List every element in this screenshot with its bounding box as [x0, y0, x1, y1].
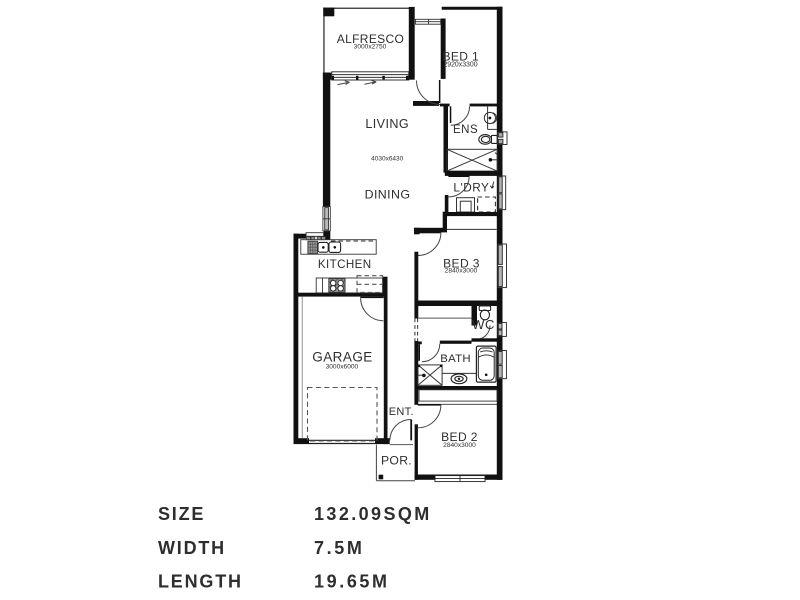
svg-text:WIDTH: WIDTH [158, 538, 226, 558]
svg-text:ENT.: ENT. [389, 406, 414, 418]
svg-text:7.5M: 7.5M [314, 538, 364, 558]
svg-text:132.09SQM: 132.09SQM [314, 504, 432, 524]
svg-text:4030x6430: 4030x6430 [371, 155, 404, 162]
svg-text:3000x6000: 3000x6000 [326, 364, 359, 371]
svg-text:LIVING: LIVING [365, 117, 409, 131]
svg-text:2920x3300: 2920x3300 [443, 62, 477, 69]
svg-text:GARAGE: GARAGE [312, 349, 372, 364]
svg-text:19.65M: 19.65M [314, 571, 390, 591]
svg-text:SIZE: SIZE [158, 504, 205, 524]
svg-text:POR.: POR. [381, 454, 412, 468]
svg-text:BATH: BATH [440, 353, 471, 365]
svg-text:2840x3000: 2840x3000 [445, 268, 478, 275]
svg-text:ENS: ENS [453, 124, 478, 136]
svg-text:2840x3000: 2840x3000 [443, 442, 476, 449]
svg-text:LENGTH: LENGTH [158, 571, 243, 591]
svg-text:KITCHEN: KITCHEN [318, 258, 372, 271]
svg-text:DINING: DINING [365, 187, 411, 201]
svg-text:WC: WC [472, 317, 495, 332]
svg-text:L'DRY: L'DRY [453, 180, 489, 194]
svg-text:3000x2750: 3000x2750 [354, 44, 387, 51]
